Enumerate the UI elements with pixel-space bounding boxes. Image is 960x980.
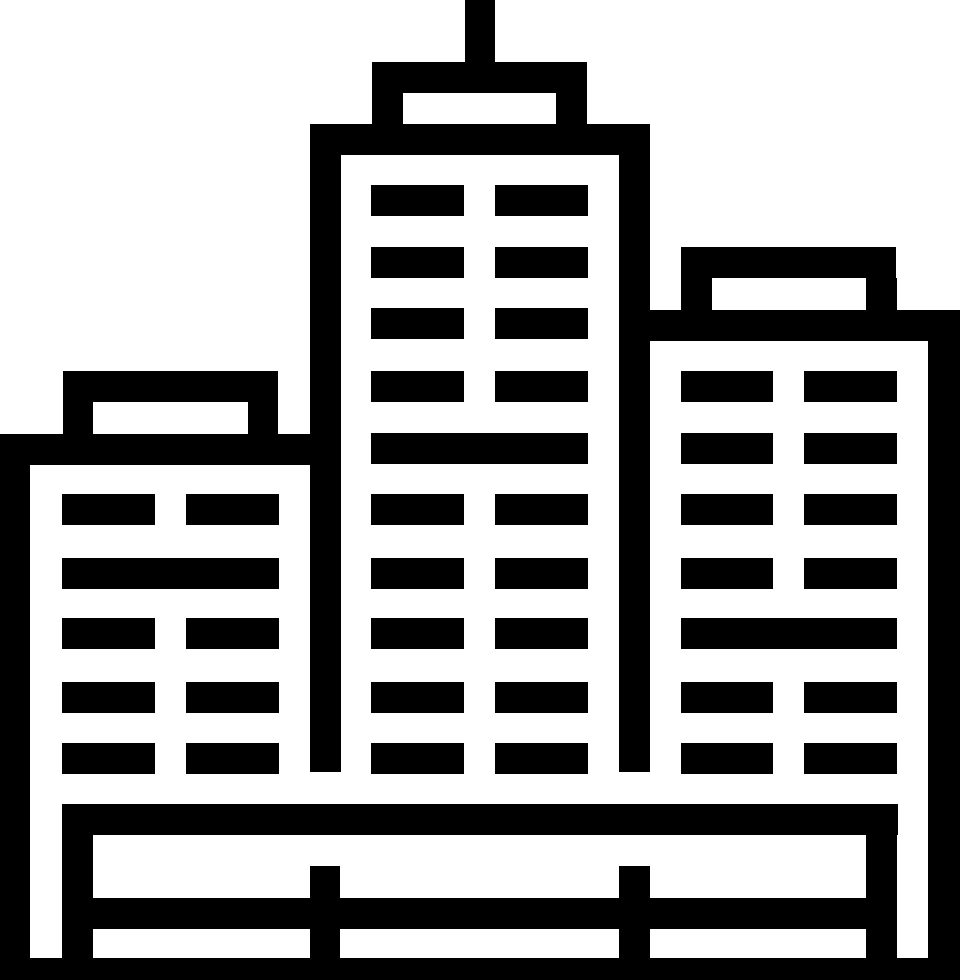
city-buildings-icon: [0, 0, 960, 980]
antenna: [465, 0, 495, 62]
city-buildings-icon-svg: [0, 0, 960, 980]
